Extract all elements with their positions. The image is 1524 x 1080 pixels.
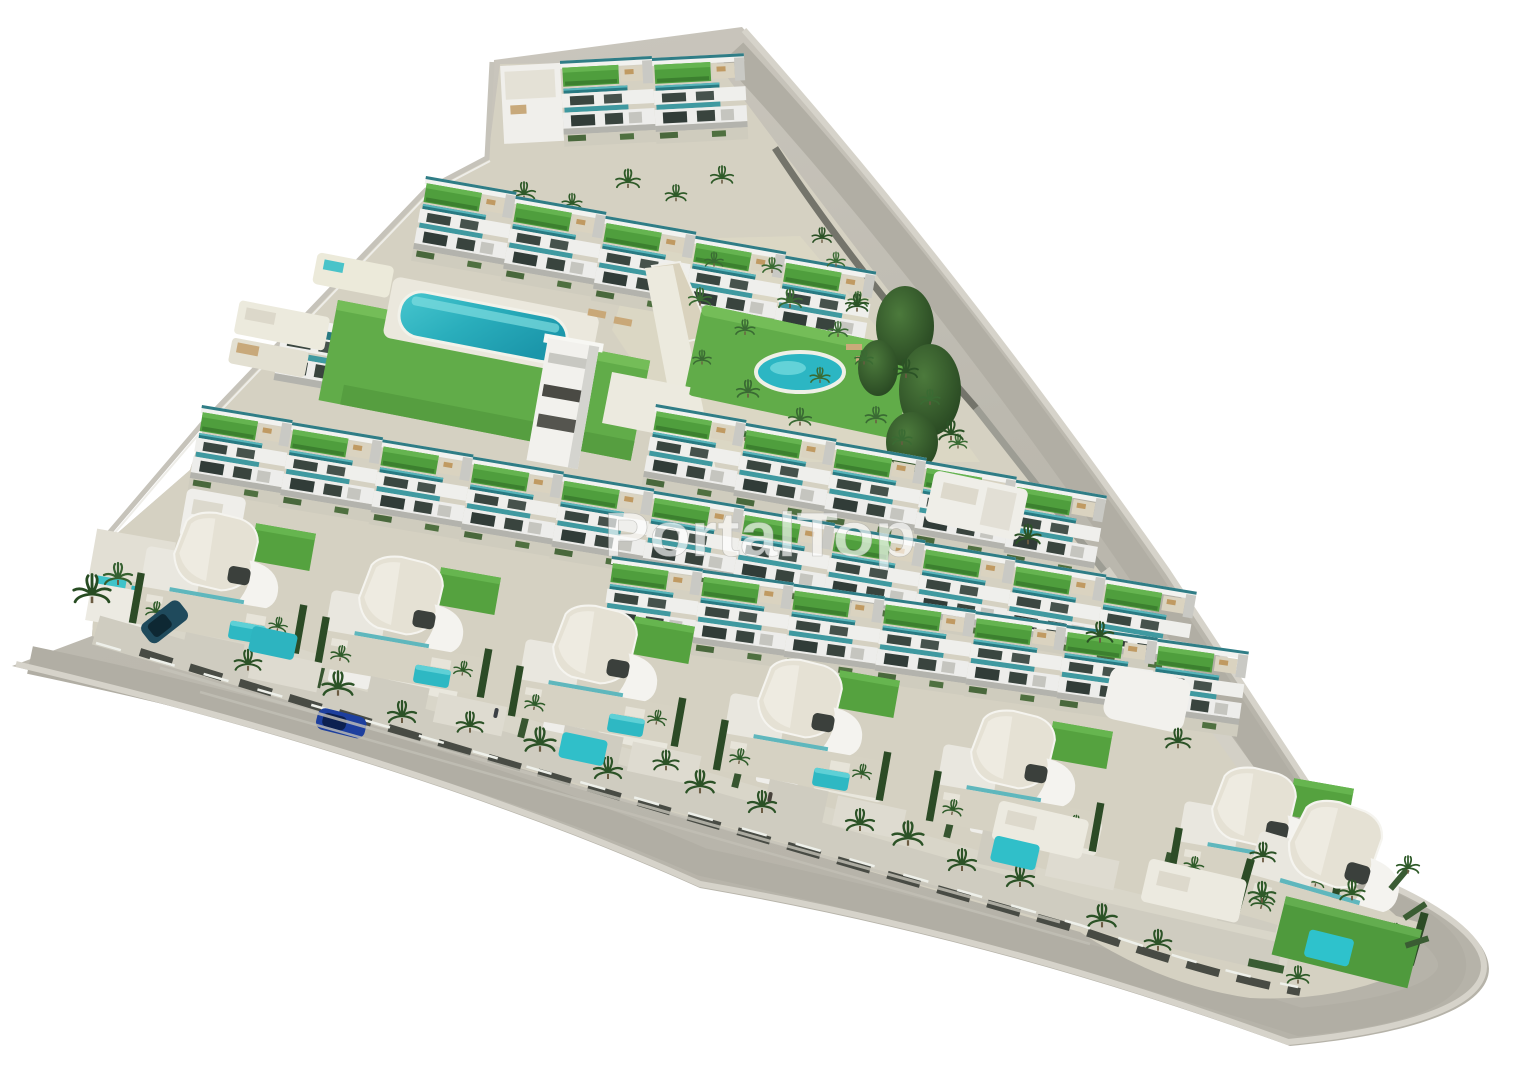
svg-text:PortalTop: PortalTop: [604, 501, 916, 570]
